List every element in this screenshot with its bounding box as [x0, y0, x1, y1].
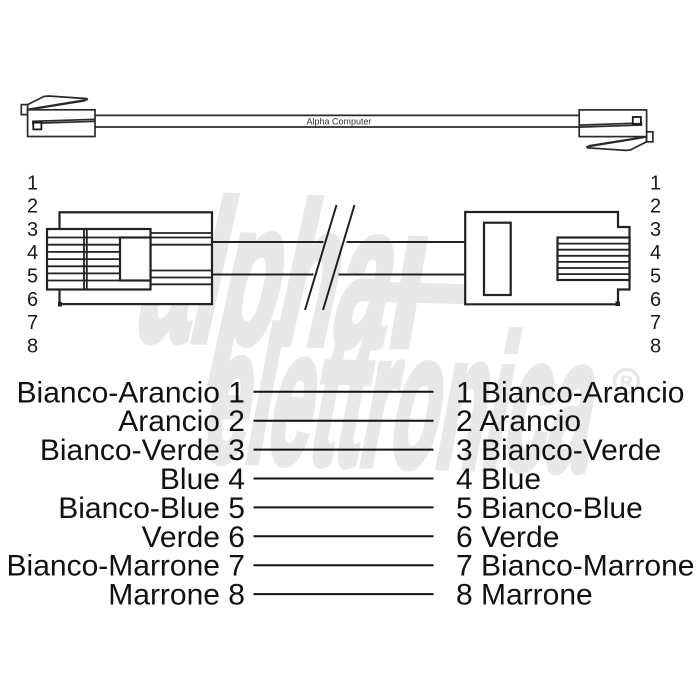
svg-text:2: 2: [27, 196, 38, 218]
svg-text:7: 7: [27, 312, 38, 334]
svg-text:Marrone 8: Marrone 8: [108, 579, 245, 612]
svg-text:5: 5: [27, 266, 38, 288]
svg-text:Alpha Computer: Alpha Computer: [306, 117, 371, 127]
svg-text:6: 6: [650, 289, 661, 311]
svg-text:8: 8: [650, 335, 661, 357]
svg-text:2: 2: [650, 196, 661, 218]
svg-text:3: 3: [27, 219, 38, 241]
svg-text:6: 6: [27, 289, 38, 311]
svg-text:5: 5: [650, 266, 661, 288]
svg-text:4: 4: [27, 242, 38, 264]
svg-text:1: 1: [650, 172, 661, 194]
svg-text:7: 7: [650, 312, 661, 334]
svg-text:4: 4: [650, 242, 661, 264]
svg-text:8: 8: [27, 335, 38, 357]
svg-text:1: 1: [27, 172, 38, 194]
svg-text:8 Marrone: 8 Marrone: [456, 579, 593, 612]
svg-text:3: 3: [650, 219, 661, 241]
